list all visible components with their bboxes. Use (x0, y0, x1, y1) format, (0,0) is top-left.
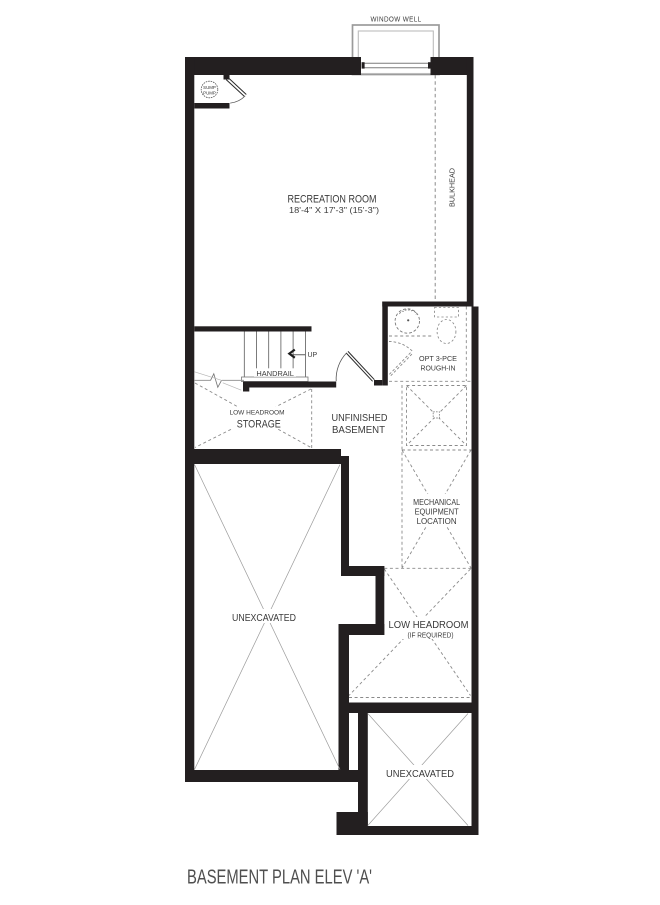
svg-text:PUMP: PUMP (203, 90, 216, 95)
svg-text:WINDOW WELL: WINDOW WELL (371, 15, 422, 24)
svg-text:UNFINISHED: UNFINISHED (332, 413, 388, 424)
svg-text:LOCATION: LOCATION (417, 517, 457, 526)
svg-text:(IF REQUIRED): (IF REQUIRED) (408, 630, 454, 639)
svg-text:EQUIPMENT: EQUIPMENT (415, 508, 459, 517)
svg-text:BASEMENT: BASEMENT (332, 425, 385, 436)
svg-text:BULKHEAD: BULKHEAD (450, 168, 457, 207)
svg-text:MECHANICAL: MECHANICAL (413, 498, 461, 507)
svg-text:RECREATION ROOM: RECREATION ROOM (288, 194, 377, 206)
svg-text:UNEXCAVATED: UNEXCAVATED (386, 769, 454, 780)
svg-text:BASEMENT PLAN ELEV 'A': BASEMENT PLAN ELEV 'A' (187, 867, 372, 889)
svg-text:LOW HEADROOM: LOW HEADROOM (389, 619, 469, 631)
svg-text:UP: UP (308, 352, 318, 359)
svg-text:LOW HEADROOM: LOW HEADROOM (230, 409, 285, 416)
svg-text:STORAGE: STORAGE (237, 418, 281, 430)
svg-text:UNEXCAVATED: UNEXCAVATED (232, 613, 296, 624)
svg-text:HANDRAIL: HANDRAIL (256, 371, 294, 378)
svg-text:18'-4" X 17'-3" (15'-3"): 18'-4" X 17'-3" (15'-3") (289, 205, 379, 215)
svg-text:OPT 3-PCE: OPT 3-PCE (419, 354, 457, 363)
svg-text:ROUGH-IN: ROUGH-IN (421, 363, 456, 372)
